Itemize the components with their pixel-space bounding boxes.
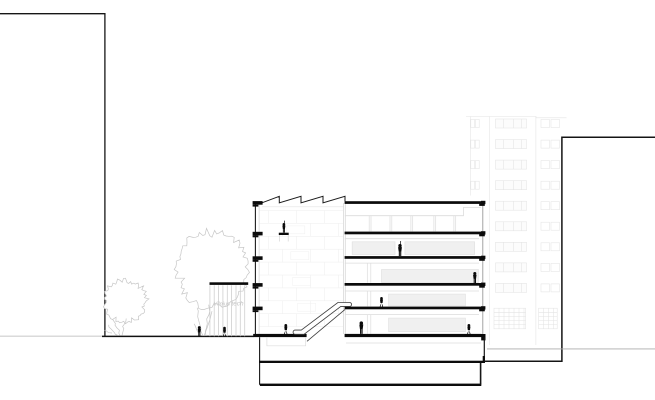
svg-text:Vilnius tech: Vilnius tech	[214, 301, 244, 308]
